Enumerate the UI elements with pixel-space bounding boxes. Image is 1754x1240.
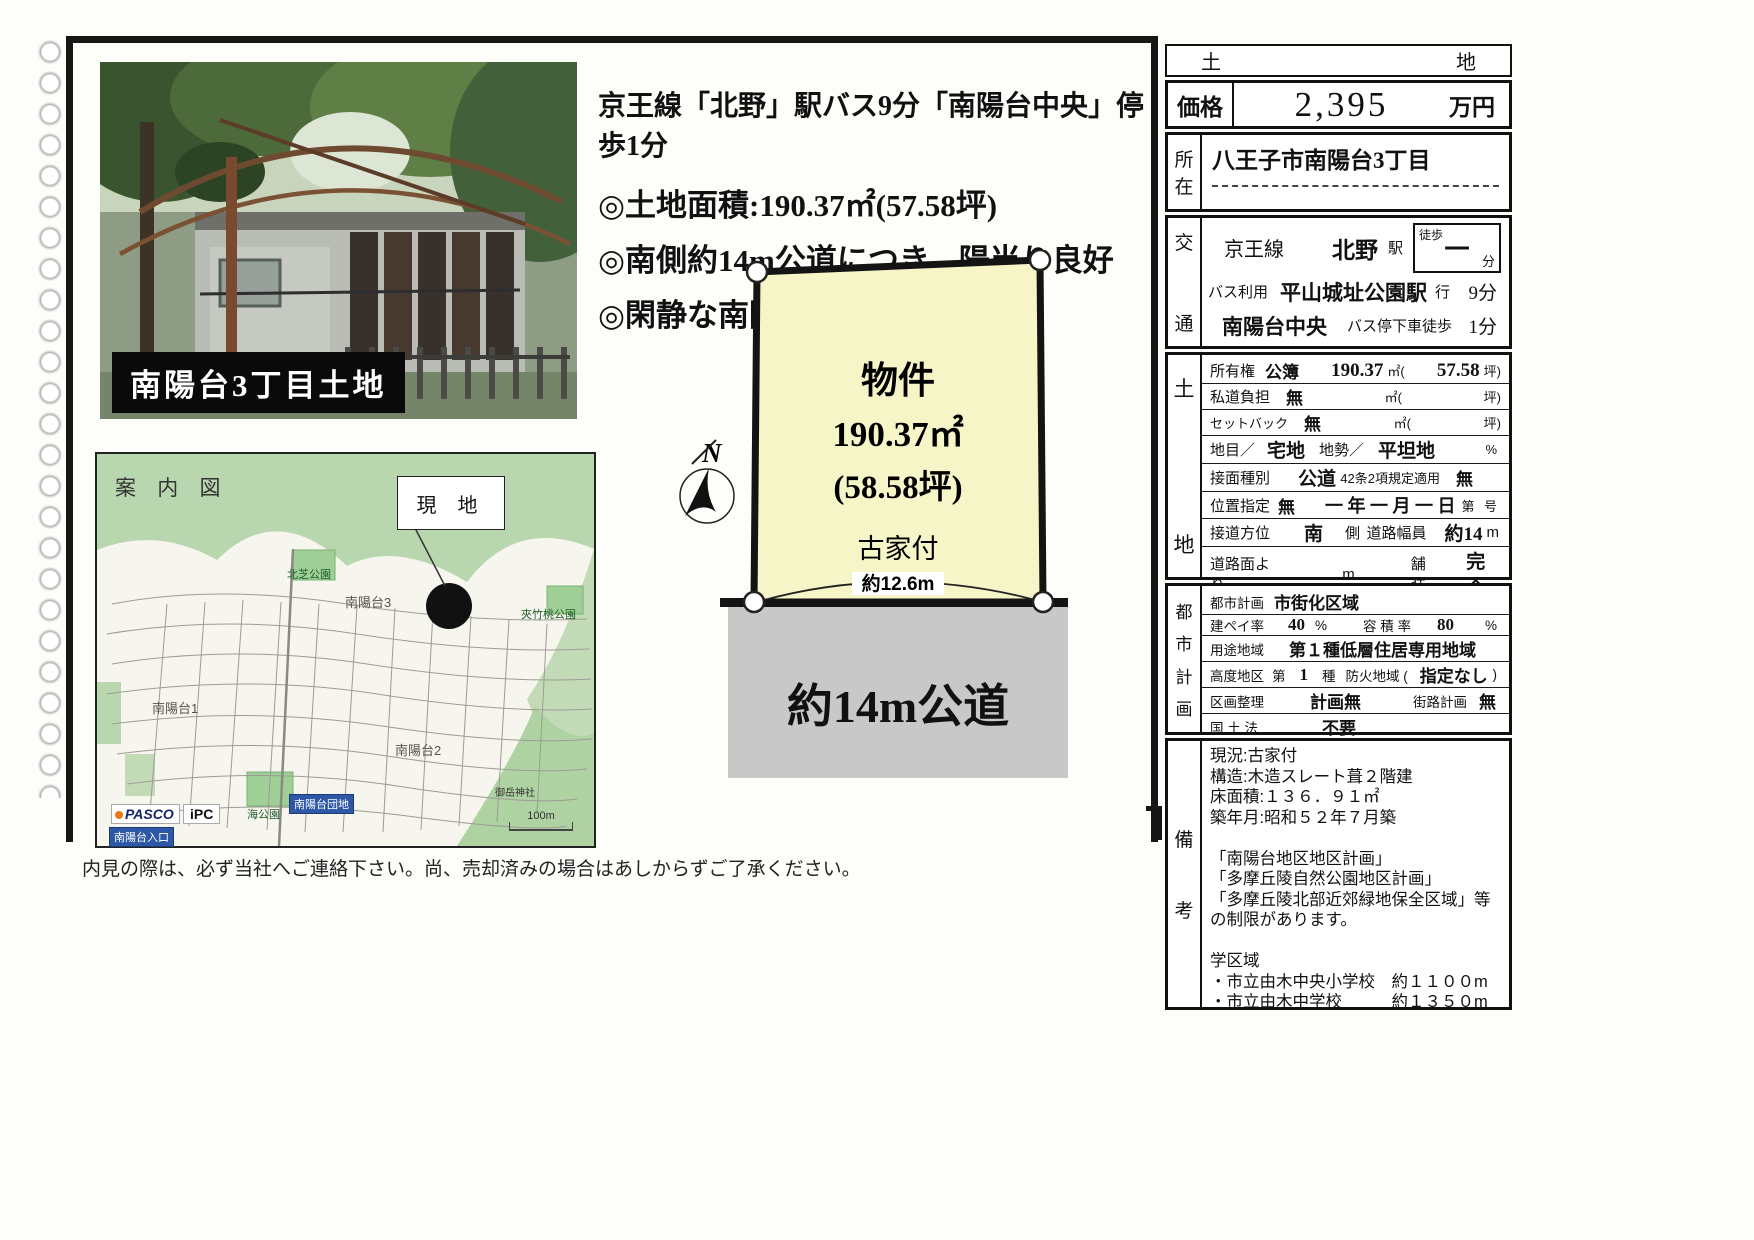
map-label-park-north: 北芝公園: [287, 566, 331, 582]
train-station: 北野: [1332, 231, 1378, 265]
land-side-label: 土 地: [1168, 355, 1202, 577]
site-callout-box: 現 地: [397, 476, 505, 530]
location-box: 所 在 八王子市南陽台3丁目: [1165, 132, 1512, 212]
binder-holes: [36, 38, 64, 798]
train-station-suffix: 駅: [1388, 237, 1403, 258]
remarks-content: 現況:古家付 構造:木造スレート葺２階建 床面積:１３６．９１㎡ 築年月:昭和５…: [1202, 741, 1509, 1007]
access-side-label: 交 通: [1168, 218, 1202, 346]
remarks-box: 備 考 現況:古家付 構造:木造スレート葺２階建 床面積:１３６．９１㎡ 築年月…: [1165, 738, 1512, 1010]
remarks-line: 制限があります。: [1210, 910, 1501, 931]
guide-map: 現 地 案 内 図 北芝公園 南陽台3 夾竹桃公園 南陽台1 海公園 南陽台団地…: [95, 452, 596, 848]
bus-use-label: バス利用: [1208, 281, 1268, 302]
access-train-row: 京王線 北野 駅 徒歩 一 分: [1208, 221, 1503, 274]
access-box: 交 通 京王線 北野 駅 徒歩 一 分 バス利用 平山城址公園駅 行 9分: [1165, 215, 1512, 349]
land-row-private-road: 私道負担 無 ㎡( 坪): [1202, 383, 1509, 409]
city-planning-box: 都 市 計 画 都市計画 市街化区域 建ペイ率 40 % 容 積 率 80 % …: [1165, 583, 1512, 735]
headline-bullet-area: ◎土地面積:190.37㎡(57.58坪): [598, 180, 1163, 225]
bus-route-suffix: 行: [1435, 281, 1450, 302]
land-detail-box: 土 地 所有権 公簿 190.37 ㎡( 57.58 坪) 私道負担 無 ㎡( …: [1165, 352, 1512, 580]
map-title: 案 内 図: [115, 472, 229, 502]
plot-area-m2: 190.37㎡: [832, 414, 963, 454]
bus-time: 9分: [1468, 278, 1497, 305]
remarks-line: 床面積:１３６．９１㎡: [1210, 787, 1501, 808]
map-label-park-sea: 海公園: [247, 806, 280, 822]
land-row-road-type: 接面種別 公道 42条2項規定適用 無: [1202, 463, 1509, 491]
map-label-park-right: 夾竹桃公園: [521, 606, 576, 622]
price-box: 価格 2,395 万円: [1165, 80, 1512, 129]
city-row-planning: 都市計画 市街化区域: [1202, 589, 1509, 614]
flyer-sheet: 南陽台3丁目土地 京王線「北野」駅バス9分「南陽台中央」停歩1分 ◎土地面積:1…: [0, 0, 1754, 1240]
map-scalebar: 100m: [509, 810, 573, 831]
map-label-bus-iriguchi: 南陽台入口: [109, 827, 174, 847]
frame-corner-bracket: [1146, 806, 1162, 840]
remarks-line: ・市立由木中央小学校 約１１００m: [1210, 972, 1501, 993]
remarks-line: 築年月:昭和５２年７月築: [1210, 808, 1501, 829]
price-unit: 万円: [1449, 88, 1509, 122]
map-scale-line: [509, 822, 573, 831]
price-value: 2,395: [1234, 85, 1449, 125]
location-value: 八王子市南陽台3丁目: [1212, 141, 1499, 175]
pasco-logo: PASCO: [111, 804, 180, 824]
headline-access: 京王線「北野」駅バス9分「南陽台中央」停歩1分: [598, 84, 1163, 164]
road-label: 約14m公道: [787, 681, 1009, 732]
land-row-road-direction: 接道方位 南 側 道路幅員 約14 m: [1202, 518, 1509, 546]
remarks-line: 「多摩丘陵北部近郊緑地保全区域」等の: [1210, 890, 1501, 911]
land-type-header: 土 地: [1165, 44, 1512, 77]
bus-route: 平山城址公園駅: [1280, 277, 1427, 307]
train-line: 京王線: [1224, 233, 1284, 262]
remarks-line: [1210, 828, 1501, 849]
map-label-bus-danchi: 南陽台団地: [289, 794, 354, 814]
land-row-ownership: 所有権 公簿 190.37 ㎡( 57.58 坪): [1202, 358, 1509, 383]
price-label: 価格: [1168, 83, 1234, 126]
remarks-side-label: 備 考: [1168, 741, 1202, 1007]
city-side-label: 都 市 計 画: [1168, 586, 1202, 732]
plot-note: 古家付: [858, 534, 939, 564]
remarks-line: 構造:木造スレート葺２階建: [1210, 767, 1501, 788]
pasco-dot-icon: [115, 811, 123, 819]
walk-time-box: 徒歩 一 分: [1413, 223, 1501, 273]
map-scale-text: 100m: [509, 810, 573, 822]
city-row-national-land-law: 国 土 法 不要: [1202, 713, 1509, 739]
plot-area-tsubo: (58.58坪): [833, 469, 962, 506]
remarks-line: 「多摩丘陵自然公園地区計画」: [1210, 869, 1501, 890]
bus-stop: 南陽台中央: [1222, 311, 1327, 341]
plot-diagram: N 約14m公道 約12.6m 物件 190.37㎡ (58.58坪) 古家付: [640, 250, 1100, 782]
city-row-land-readjustment: 区画整理 計画無 街路計画 無: [1202, 687, 1509, 713]
site-marker-dot: [426, 583, 472, 629]
remarks-line: [1210, 931, 1501, 952]
city-row-height-district: 高度地区 第 1 種 防火地域 ( 指定なし ): [1202, 661, 1509, 687]
land-row-category: 地目／ 宅地 地勢／ 平坦地 %: [1202, 435, 1509, 463]
access-bus-route-row: バス利用 平山城址公園駅 行 9分: [1208, 274, 1503, 308]
remarks-line: 現況:古家付: [1210, 746, 1501, 767]
city-row-coverage: 建ペイ率 40 % 容 積 率 80 %: [1202, 614, 1509, 635]
remarks-line: ・市立由木中学校 約１３５０m: [1210, 992, 1501, 1013]
location-side-label: 所 在: [1168, 135, 1202, 209]
frontage-label: 約12.6m: [862, 572, 935, 595]
map-label-district2: 南陽台2: [395, 740, 441, 759]
compass-icon: N: [680, 438, 734, 523]
photo-caption: 南陽台3丁目土地: [112, 352, 405, 413]
map-label-district1: 南陽台1: [152, 698, 198, 717]
map-label-shrine: 御岳神社: [495, 784, 535, 799]
access-bus-stop-row: 南陽台中央 バス停下車徒歩 1分: [1208, 309, 1503, 343]
remarks-line: 「南陽台地区地区計画」: [1210, 849, 1501, 870]
land-row-setback: セットバック 無 ㎡( 坪): [1202, 409, 1509, 435]
city-row-zoning: 用途地域 第１種低層住居専用地域: [1202, 635, 1509, 661]
remarks-line: 学区域: [1210, 951, 1501, 972]
ipc-logo: iPC: [183, 804, 220, 824]
location-dashed-line: [1212, 185, 1499, 187]
land-row-position-designation: 位置指定 無 一 年 一 月 一 日 第 号: [1202, 491, 1509, 518]
disclaimer-text: 内見の際は、必ず当社へご連絡下さい。尚、売却済みの場合はあしからずご了承ください…: [82, 854, 861, 881]
bus-stop-suffix: バス停下車徒歩: [1347, 315, 1452, 336]
bus-stop-time: 1分: [1468, 312, 1497, 339]
map-label-district3: 南陽台3: [345, 592, 391, 611]
plot-title: 物件: [861, 360, 935, 402]
